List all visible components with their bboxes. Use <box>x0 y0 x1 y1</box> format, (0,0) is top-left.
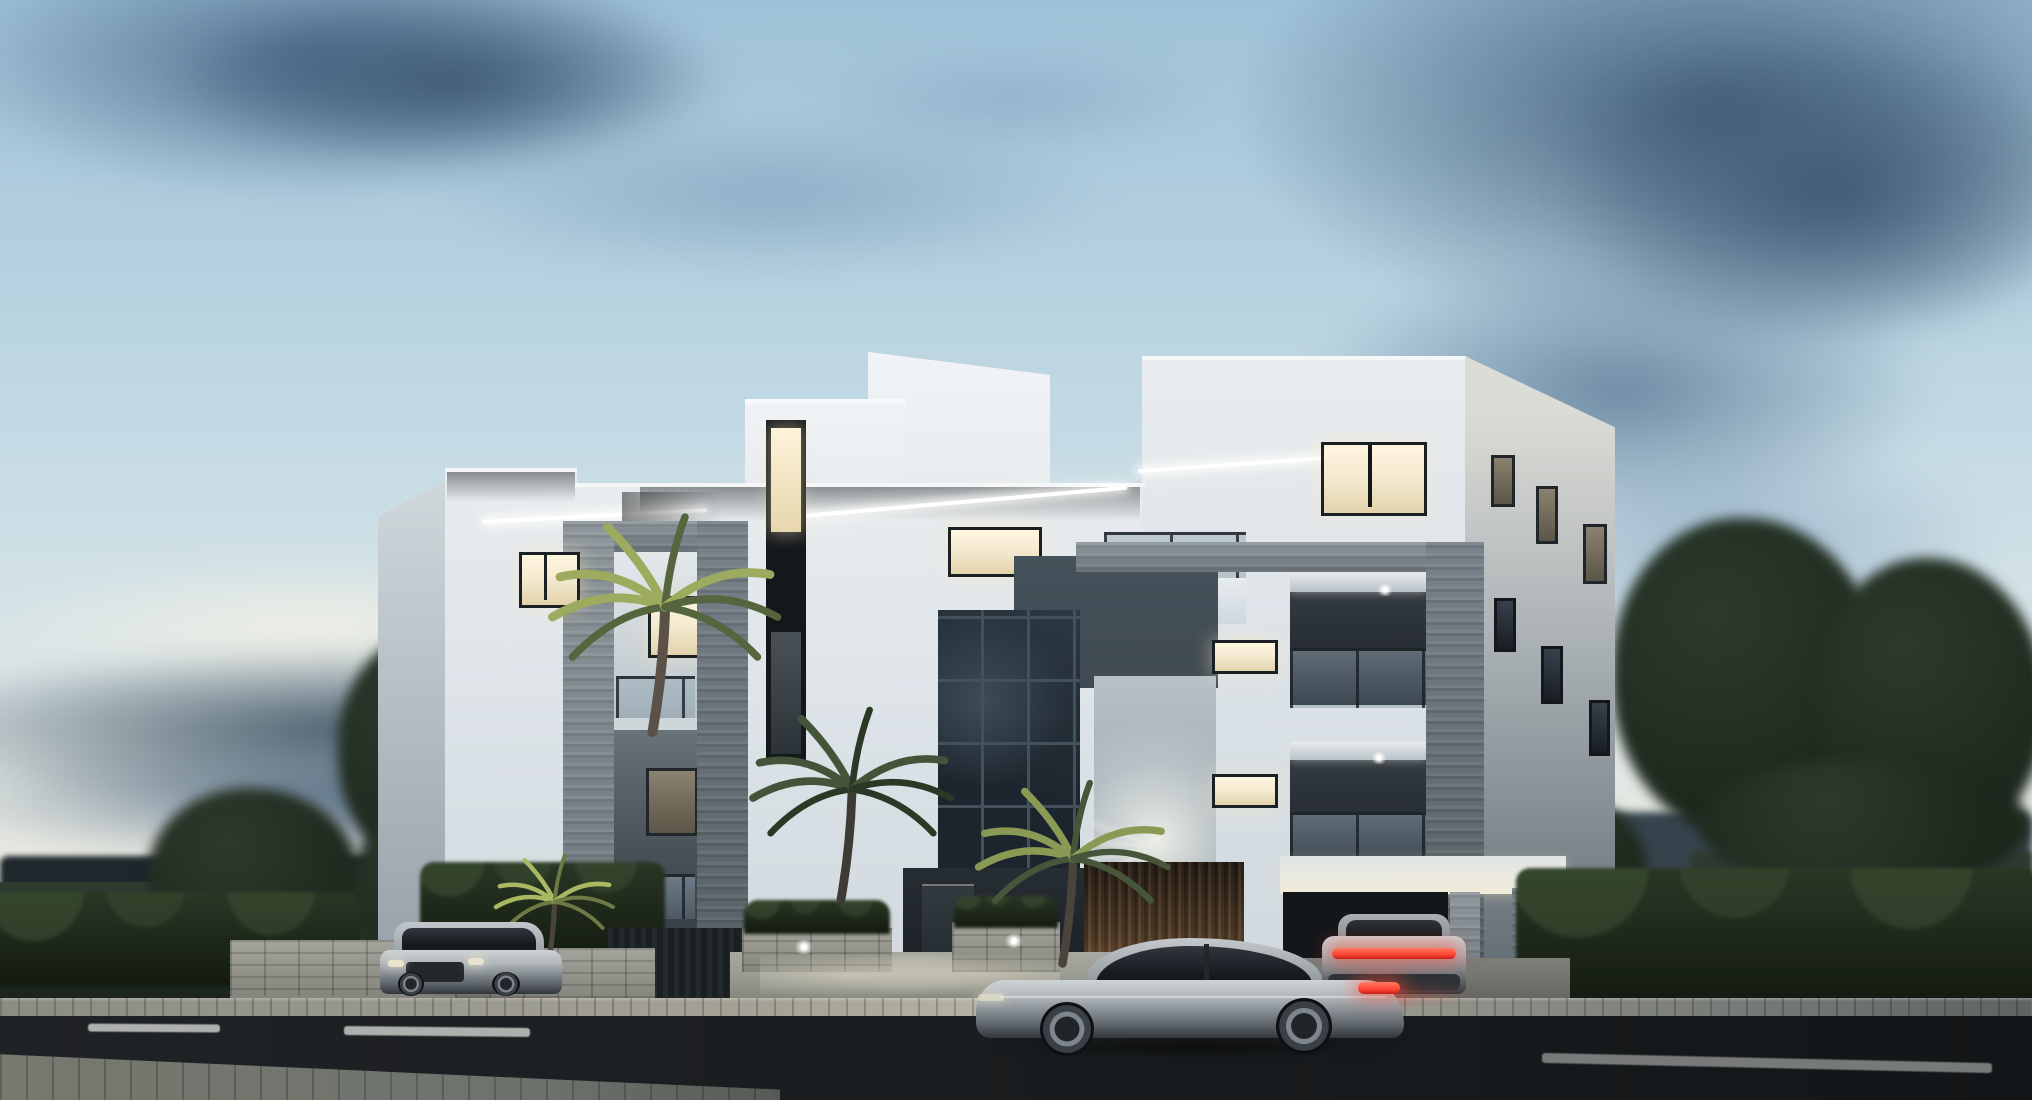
parapet-right-tower <box>1142 356 1465 360</box>
walkway-light-1 <box>793 940 815 954</box>
cloud-center-wisp <box>800 40 1220 160</box>
side-window-2 <box>1536 486 1558 544</box>
suv-headlight-right <box>468 958 484 965</box>
sedan-crease <box>1000 996 1386 998</box>
lane-dash-2 <box>344 1026 530 1037</box>
suv-headlight-left <box>388 960 404 967</box>
balcony-ceiling-spot-2 <box>1370 752 1388 764</box>
suv-wheel-rear <box>492 972 520 996</box>
suv-wheel-front <box>398 972 424 996</box>
scene-apartment-building-dusk <box>0 0 2032 1100</box>
right-tower-kitchen-window <box>1321 442 1427 516</box>
right-balcony-lower-ceiling <box>1290 742 1426 760</box>
sedan-headlight <box>978 994 1004 1001</box>
driveway-wall-left <box>230 940 395 996</box>
suv-glass <box>402 928 536 952</box>
balcony-ceiling-spot-1 <box>1376 584 1394 596</box>
sedan-street <box>976 938 1404 1060</box>
side-window-5 <box>1541 646 1563 704</box>
side-window-4 <box>1494 598 1516 652</box>
portal-right-beam <box>1076 542 1484 572</box>
palm-center <box>742 668 962 928</box>
sedan-taillight <box>1358 982 1400 994</box>
side-window-3 <box>1583 524 1607 584</box>
right-mid-window-lit <box>1212 640 1278 674</box>
right-low-window-lit <box>1212 774 1278 808</box>
lane-dash-1 <box>88 1024 220 1033</box>
parapet-penthouse <box>745 399 905 403</box>
right-tower-kitchen-mullion <box>1368 445 1372 507</box>
sedan-wheel-rear <box>1276 998 1332 1054</box>
suv-driveway <box>380 920 562 998</box>
side-window-6 <box>1589 700 1610 756</box>
side-window-1 <box>1491 455 1515 507</box>
hedge-right-boundary <box>1516 868 2032 1010</box>
sedan-wheel-front <box>1040 1002 1094 1056</box>
right-balcony-upper-rail <box>1290 648 1426 708</box>
right-balcony-upper-ceiling <box>1290 572 1426 592</box>
